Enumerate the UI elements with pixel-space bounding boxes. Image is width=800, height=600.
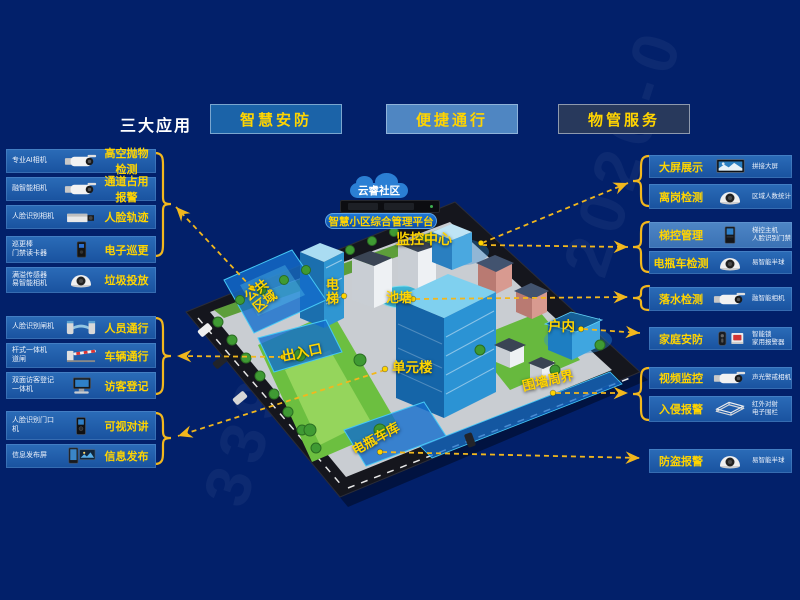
- device-label: 区域人数统计: [749, 193, 792, 201]
- device-label: 专业AI相机: [12, 157, 62, 165]
- map-label-monitor-center: 监控中心: [396, 232, 452, 247]
- feature-label: 落水检测: [651, 291, 711, 307]
- device-label: 满溢传感器 易智能相机: [12, 272, 62, 289]
- feature-label: 电子巡更: [100, 242, 156, 258]
- legend-item-visitor-registration: 双面访客登记 一体机 访客登记: [6, 372, 156, 399]
- device-label: 信息发布屏: [12, 452, 62, 460]
- brace-right-group-2: [633, 222, 649, 272]
- device-label: 拼接大屏: [749, 163, 792, 171]
- access-panel-icon: [711, 226, 749, 244]
- perimeter-fence-icon: [711, 401, 749, 418]
- legend-item-video-surveillance: 视频监控 声光警戒相机: [649, 367, 792, 389]
- app-button-convenient-access[interactable]: 便捷通行: [386, 104, 518, 134]
- legend-item-face-trajectory: 人脸识别相机 人脸轨迹: [6, 205, 156, 229]
- map-label-indoor: 户内: [548, 320, 575, 335]
- legend-item-drowning-detection: 落水检测 融智能相机: [649, 287, 792, 311]
- legend-item-ebike-detection: 电瓶车检测 易智能半球: [649, 251, 792, 274]
- device-label: 融智能相机: [749, 295, 792, 303]
- feature-label: 垃圾投放: [100, 272, 156, 288]
- dome-camera-icon: [711, 255, 749, 271]
- legend-item-info-publishing: 信息发布屏 信息发布: [6, 444, 156, 468]
- device-label: 易智能半球: [749, 259, 792, 267]
- device-label: 红外对射 电子围栏: [749, 401, 792, 417]
- feature-label: 人脸轨迹: [100, 209, 156, 225]
- feature-label: 防盗报警: [651, 453, 711, 469]
- feature-label: 入侵报警: [651, 401, 711, 417]
- device-label: 易智能半球: [749, 457, 792, 465]
- door-station-icon: [62, 417, 100, 435]
- device-label: 融智能相机: [12, 185, 62, 193]
- video-wall-icon: [711, 158, 749, 175]
- device-label: 声光警戒相机: [749, 374, 792, 382]
- cloud-community: 云睿社区: [350, 183, 408, 198]
- map-label-pond: 池塘: [386, 291, 412, 305]
- feature-label: 车辆通行: [100, 348, 156, 364]
- smart-community-infographic: 339 2020-0: [0, 0, 800, 600]
- feature-label: 通道占用报警: [100, 173, 156, 205]
- feature-label: 大屏展示: [651, 159, 711, 175]
- feature-label: 离岗检测: [651, 189, 711, 205]
- map-label-unit-building: 单元楼: [392, 361, 433, 376]
- legend-item-intrusion-alarm: 入侵报警 红外对射 电子围栏: [649, 396, 792, 422]
- feature-label: 梯控管理: [651, 227, 711, 243]
- app-button-property-service[interactable]: 物管服务: [558, 104, 690, 134]
- legend-item-channel-occupancy: 融智能相机 通道占用报警: [6, 177, 156, 201]
- brace-right-group-3: [633, 286, 649, 310]
- bullet-camera-icon: [711, 371, 749, 385]
- legend-item-video-intercom: 人脸识别门口 机 可视对讲: [6, 411, 156, 440]
- dome-camera-icon: [711, 453, 749, 469]
- brace-left-group-1: [155, 153, 171, 256]
- legend-item-high-altitude-throwing: 专业AI相机 高空抛物检测: [6, 149, 156, 173]
- device-label: 人脸识别门口 机: [12, 417, 62, 434]
- feature-label: 人员通行: [100, 320, 156, 336]
- legend-item-burglar-alarm: 防盗报警 易智能半球: [649, 449, 792, 473]
- device-label: 人脸识别闸机: [12, 323, 62, 331]
- cloud-label: 云睿社区: [358, 183, 400, 198]
- device-label: 人脸识别相机: [12, 213, 62, 221]
- legend-item-big-screen-display: 大屏展示 拼接大屏: [649, 155, 792, 178]
- visitor-terminal-icon: [62, 377, 100, 395]
- legend-item-personnel-access: 人脸识别闸机 人员通行: [6, 316, 156, 339]
- brace-left-group-3: [155, 413, 171, 464]
- info-screen-icon: [62, 447, 100, 465]
- feature-label: 电瓶车检测: [651, 255, 711, 271]
- device-label: 巡更棒 门禁读卡器: [12, 241, 62, 258]
- arrow-to-right-group-1: [482, 183, 628, 243]
- box-camera-icon: [62, 211, 100, 224]
- brace-right-group-1: [633, 156, 649, 206]
- app-button-smart-security[interactable]: 智慧安防: [210, 104, 342, 134]
- bullet-camera-icon: [711, 292, 749, 306]
- map-label-elevator: 电 梯: [326, 278, 339, 307]
- barrier-gate-icon: [62, 348, 100, 363]
- platform-name-badge: 智慧小区综合管理平台: [325, 213, 437, 229]
- card-reader-icon: [62, 241, 100, 258]
- bullet-camera-icon: [62, 182, 100, 196]
- feature-label: 信息发布: [100, 448, 156, 464]
- legend-item-home-security: 家庭安防 智能锁 家用报警器: [649, 327, 792, 350]
- legend-item-vehicle-access: 杆式一体机 道闸 车辆通行: [6, 343, 156, 368]
- legend-item-elevator-control: 梯控管理 梯控主机 人脸识别门禁: [649, 222, 792, 248]
- brace-left-group-2: [155, 318, 171, 394]
- feature-label: 视频监控: [651, 370, 711, 386]
- bullet-camera-icon: [62, 154, 100, 168]
- smart-lock-siren-icon: [711, 330, 749, 347]
- feature-label: 可视对讲: [100, 418, 156, 434]
- feature-label: 家庭安防: [651, 331, 711, 347]
- device-label: 双面访客登记 一体机: [12, 377, 62, 394]
- legend-item-garbage-disposal: 满溢传感器 易智能相机 垃圾投放: [6, 267, 156, 293]
- dome-camera-icon: [62, 272, 100, 288]
- server-rack: [340, 200, 440, 213]
- legend-item-absence-detection: 离岗检测 区域人数统计: [649, 184, 792, 209]
- device-label: 智能锁 家用报警器: [749, 331, 792, 347]
- legend-item-electronic-patrol: 巡更棒 门禁读卡器 电子巡更: [6, 236, 156, 263]
- turnstile-icon: [62, 319, 100, 336]
- feature-label: 访客登记: [100, 378, 156, 394]
- section-title: 三大应用: [120, 112, 192, 136]
- dome-camera-icon: [711, 189, 749, 205]
- device-label: 梯控主机 人脸识别门禁: [749, 227, 792, 243]
- device-label: 杆式一体机 道闸: [12, 347, 62, 364]
